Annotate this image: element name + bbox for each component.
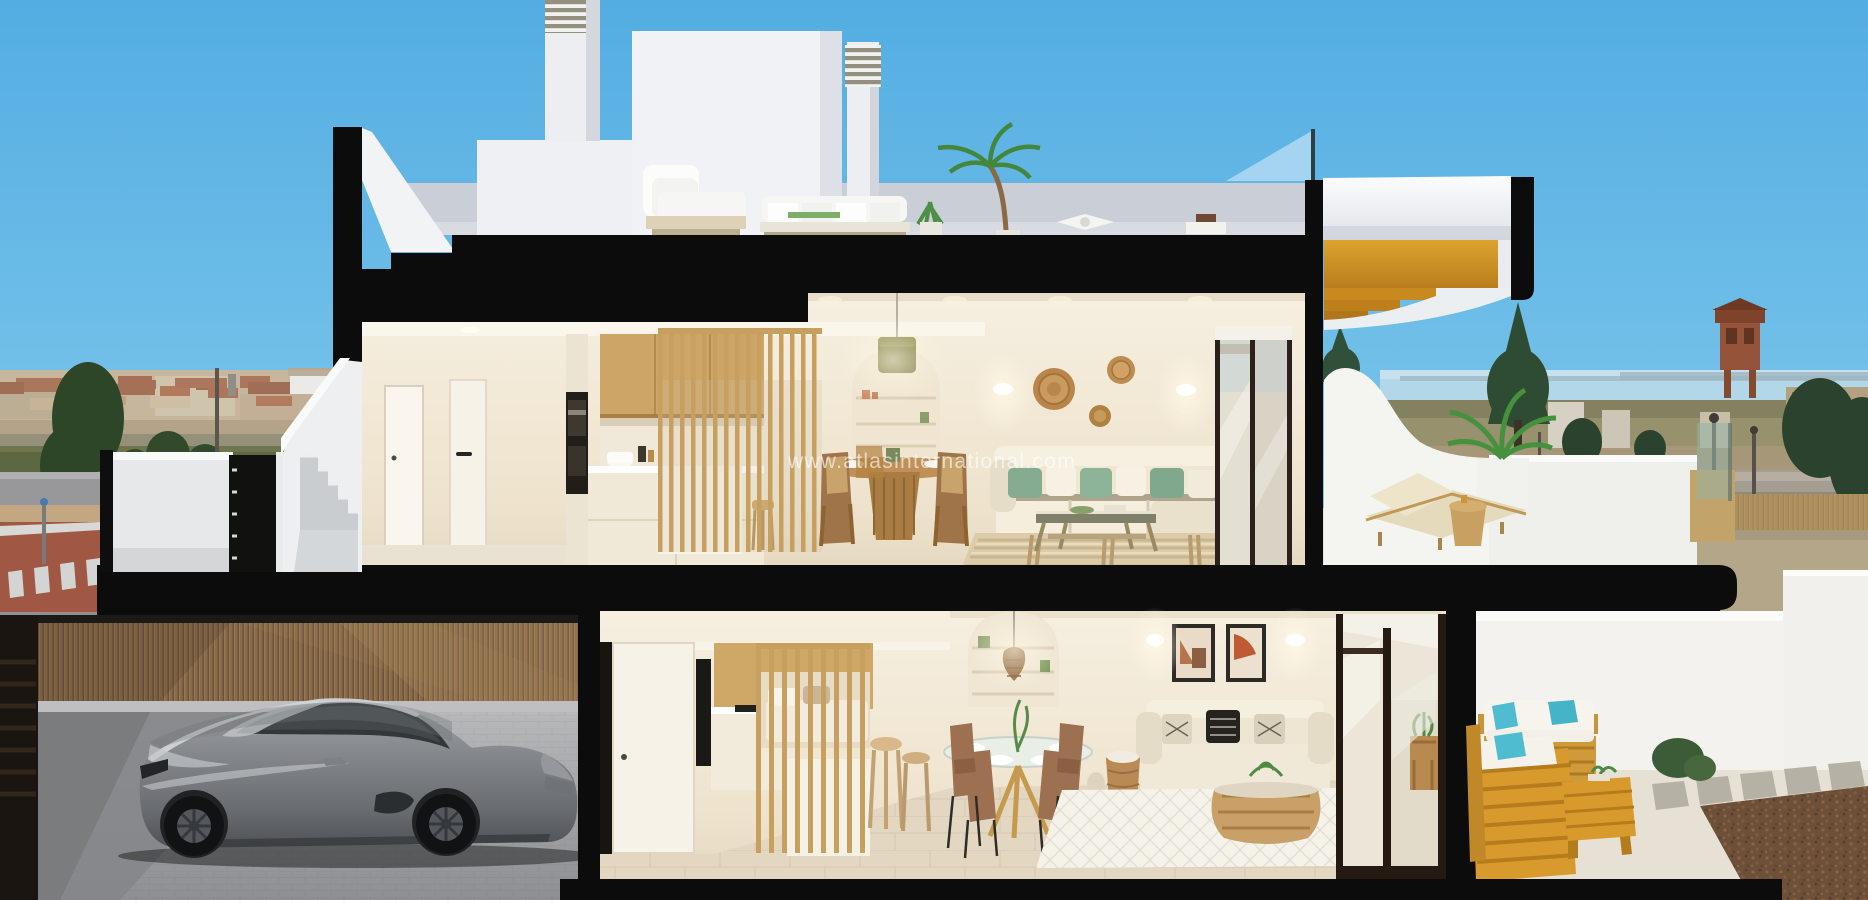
svg-text:www.atlasinternational.com: www.atlasinternational.com: [787, 450, 1076, 473]
